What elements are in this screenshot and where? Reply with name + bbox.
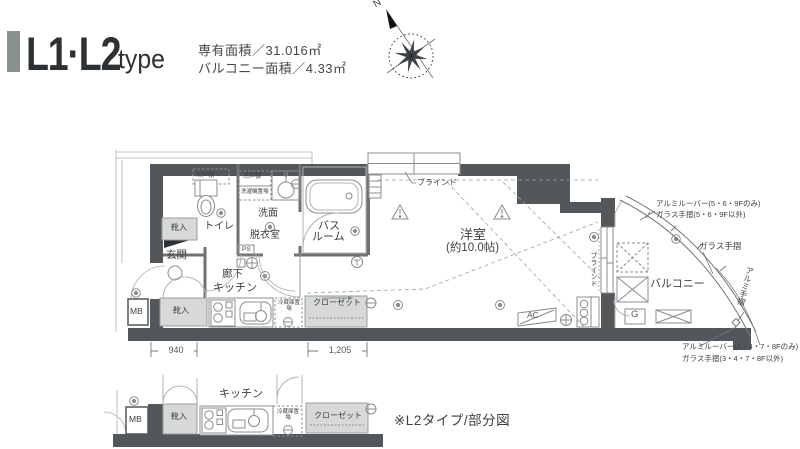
wall-top-right [458, 164, 520, 176]
label-living-room: 洋室 [460, 228, 486, 241]
label-washer-space: 洗濯機置場 [241, 190, 269, 196]
dimension-940: 940 [158, 346, 194, 355]
balcony-area-text: バルコニー面積／4.33㎡ [198, 58, 347, 77]
title-accent-bar [7, 31, 20, 72]
wall-right-lower [601, 293, 615, 333]
partial-label-mb: MB [129, 415, 142, 424]
label-living-size: (約10.0帖) [446, 243, 499, 255]
partial-wall-left [148, 404, 163, 435]
balcony-door [601, 227, 613, 293]
label-ps: PS [242, 247, 251, 254]
label-kitchen: キッチン [213, 283, 257, 294]
label-shoebox-lower: 靴入 [173, 307, 189, 315]
wall-step-1 [517, 164, 570, 204]
partial-label-kitchen: キッチン [219, 389, 263, 400]
outlet-symbols [394, 233, 681, 310]
label-cabinet-1: 吊戸棚 [196, 173, 214, 179]
label-hallway: 廊下 [222, 269, 243, 280]
label-blind-side: ブラインド [590, 252, 597, 287]
partial-label-closet: クローゼット [314, 412, 362, 420]
genkan-circle [168, 266, 182, 280]
washroom-fixtures [239, 171, 301, 232]
label-closet: クローゼット [313, 299, 361, 307]
label-blind-top: ブラインド [417, 179, 457, 187]
annotation-louver-bottom-1: アルミルーバー(3・4・7・8Fのみ) [682, 343, 798, 351]
exclusive-area-text: 専有面積／31.016㎡ [198, 40, 322, 59]
label-cabinet-2: 吊戸棚 [243, 174, 261, 180]
bathroom-fixtures [303, 167, 366, 268]
genkan-step-wedge [164, 240, 190, 248]
label-mb: MB [130, 307, 143, 316]
annotation-glass-rail: ガラス手摺 [699, 242, 741, 251]
bathtub [306, 180, 362, 213]
dimension-1205: 1,205 [318, 346, 362, 355]
partial-label-fridge: 冷蔵庫置場 [275, 409, 301, 422]
label-bath-2: ルーム [312, 232, 345, 243]
partial-wall-bottom [113, 434, 383, 447]
living-window [368, 153, 460, 198]
label-fridge-space: 冷蔵庫置場 [277, 300, 301, 313]
entrance-symbols [132, 266, 206, 298]
warning-triangles [392, 205, 510, 219]
compass-rose [386, 9, 435, 78]
wall-bottom [128, 328, 738, 341]
wall-right-upper [601, 198, 615, 227]
label-g: G [631, 310, 638, 320]
label-balcony: バルコニー [650, 279, 705, 290]
compass-needle [386, 9, 397, 29]
page-title-suffix: type [118, 44, 165, 75]
label-entrance: 玄関 [166, 250, 187, 261]
partial-plan-caption: ※L2タイプ/部分図 [394, 414, 510, 428]
floorplan-page: L1·L2 type 専有面積／31.016㎡ バルコニー面積／4.33㎡ N … [0, 0, 800, 449]
partial-label-shoebox: 靴入 [171, 413, 187, 421]
label-shoebox-upper: 靴入 [171, 224, 187, 232]
label-toilet: トイレ [204, 222, 234, 232]
label-washroom-2: 脱衣室 [250, 231, 280, 241]
annotation-louver-bottom-2: ガラス手摺(3・4・7・8F以外) [682, 355, 783, 363]
page-title: L1·L2 [26, 26, 120, 81]
label-washroom-1: 洗面 [258, 209, 278, 219]
annotation-louver-top-2: ガラス手摺(5・6・9F以外) [656, 211, 745, 219]
annotation-louver-top-1: アルミルーバー(5・6・9Fのみ) [656, 200, 760, 208]
label-ac: AC [527, 311, 539, 320]
water-heater [561, 297, 600, 327]
wall-left-upper [150, 164, 163, 263]
